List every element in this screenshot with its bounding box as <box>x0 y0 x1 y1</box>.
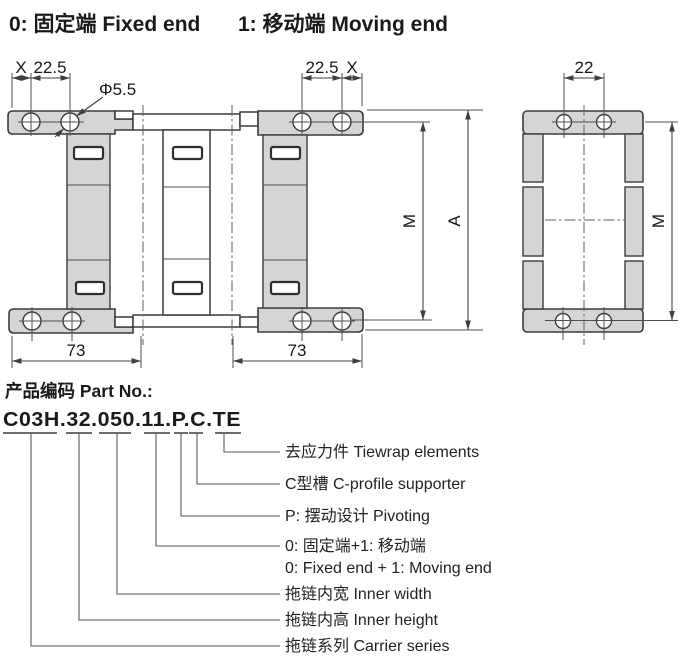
callout-end-type-en: 0: Fixed end + 1: Moving end <box>285 560 492 577</box>
dim-x-right-label: X <box>346 58 357 77</box>
callout-inner-height: 拖链内高 Inner height <box>285 611 439 629</box>
dim-73-right-label: 73 <box>288 341 307 360</box>
slot <box>173 282 202 294</box>
catalog-drawing-page: 0: 固定端 Fixed end 1: 移动端 Moving end <box>0 0 700 663</box>
part-number-section: 产品编码 Part No.: C03H.32.050.11.P.C.TE 去应力… <box>3 381 492 655</box>
dim-22-5-left-label: 22.5 <box>33 58 66 77</box>
slot <box>271 282 299 294</box>
callout-labels: 去应力件 Tiewrap elements C型槽 C-profile supp… <box>285 442 492 655</box>
slot <box>173 147 202 159</box>
side-dim-22-label: 22 <box>575 58 594 77</box>
slot <box>76 282 104 294</box>
dim-73-left-label: 73 <box>67 341 86 360</box>
side-right-column <box>625 134 643 309</box>
side-dimensions: 22 M <box>545 58 678 321</box>
link-plate-middle <box>163 130 210 315</box>
callout-tiewrap: 去应力件 Tiewrap elements <box>285 442 479 461</box>
callout-inner-width: 拖链内宽 Inner width <box>285 585 432 603</box>
callout-carrier-series: 拖链系列 Carrier series <box>285 637 449 655</box>
slot <box>74 147 103 159</box>
slot <box>271 147 300 159</box>
dim-x-left-label: X <box>15 58 26 77</box>
cable-carrier-technical-drawing: 0: 固定端 Fixed end 1: 移动端 Moving end <box>0 0 700 663</box>
link-plate-right <box>263 135 307 308</box>
callout-end-type: 0: 固定端+1: 移动端 <box>285 537 426 555</box>
part-number: C03H.32.050.11.P.C.TE <box>3 409 241 431</box>
side-dim-m-label: M <box>649 214 668 228</box>
part-number-title: 产品编码 Part No.: <box>5 381 153 401</box>
link-tab-top-right <box>240 112 258 126</box>
front-view: X 22.5 Φ5.5 22.5 X 73 73 M A <box>8 58 483 368</box>
callout-c-profile: C型槽 C-profile supporter <box>285 475 466 493</box>
callout-pivoting: P: 摆动设计 Pivoting <box>285 507 430 525</box>
bottom-band <box>133 315 240 327</box>
link-tab-bottom-left <box>115 317 133 327</box>
dim-m-label: M <box>400 214 419 228</box>
header-fixed-end: 0: 固定端 Fixed end <box>9 12 200 36</box>
header-moving-end: 1: 移动端 Moving end <box>238 12 448 36</box>
callout-leader-lines <box>31 434 280 646</box>
side-view: 22 M <box>523 58 678 345</box>
link-plate-left <box>67 134 110 309</box>
dim-a-label: A <box>445 215 464 227</box>
top-band <box>133 114 240 130</box>
link-tab-bottom-right <box>240 317 258 327</box>
header: 0: 固定端 Fixed end 1: 移动端 Moving end <box>9 12 448 36</box>
hole-diameter-label: Φ5.5 <box>99 80 136 99</box>
link-tab-top-left <box>115 111 133 119</box>
side-left-column <box>523 134 543 309</box>
dim-22-5-right-label: 22.5 <box>305 58 338 77</box>
